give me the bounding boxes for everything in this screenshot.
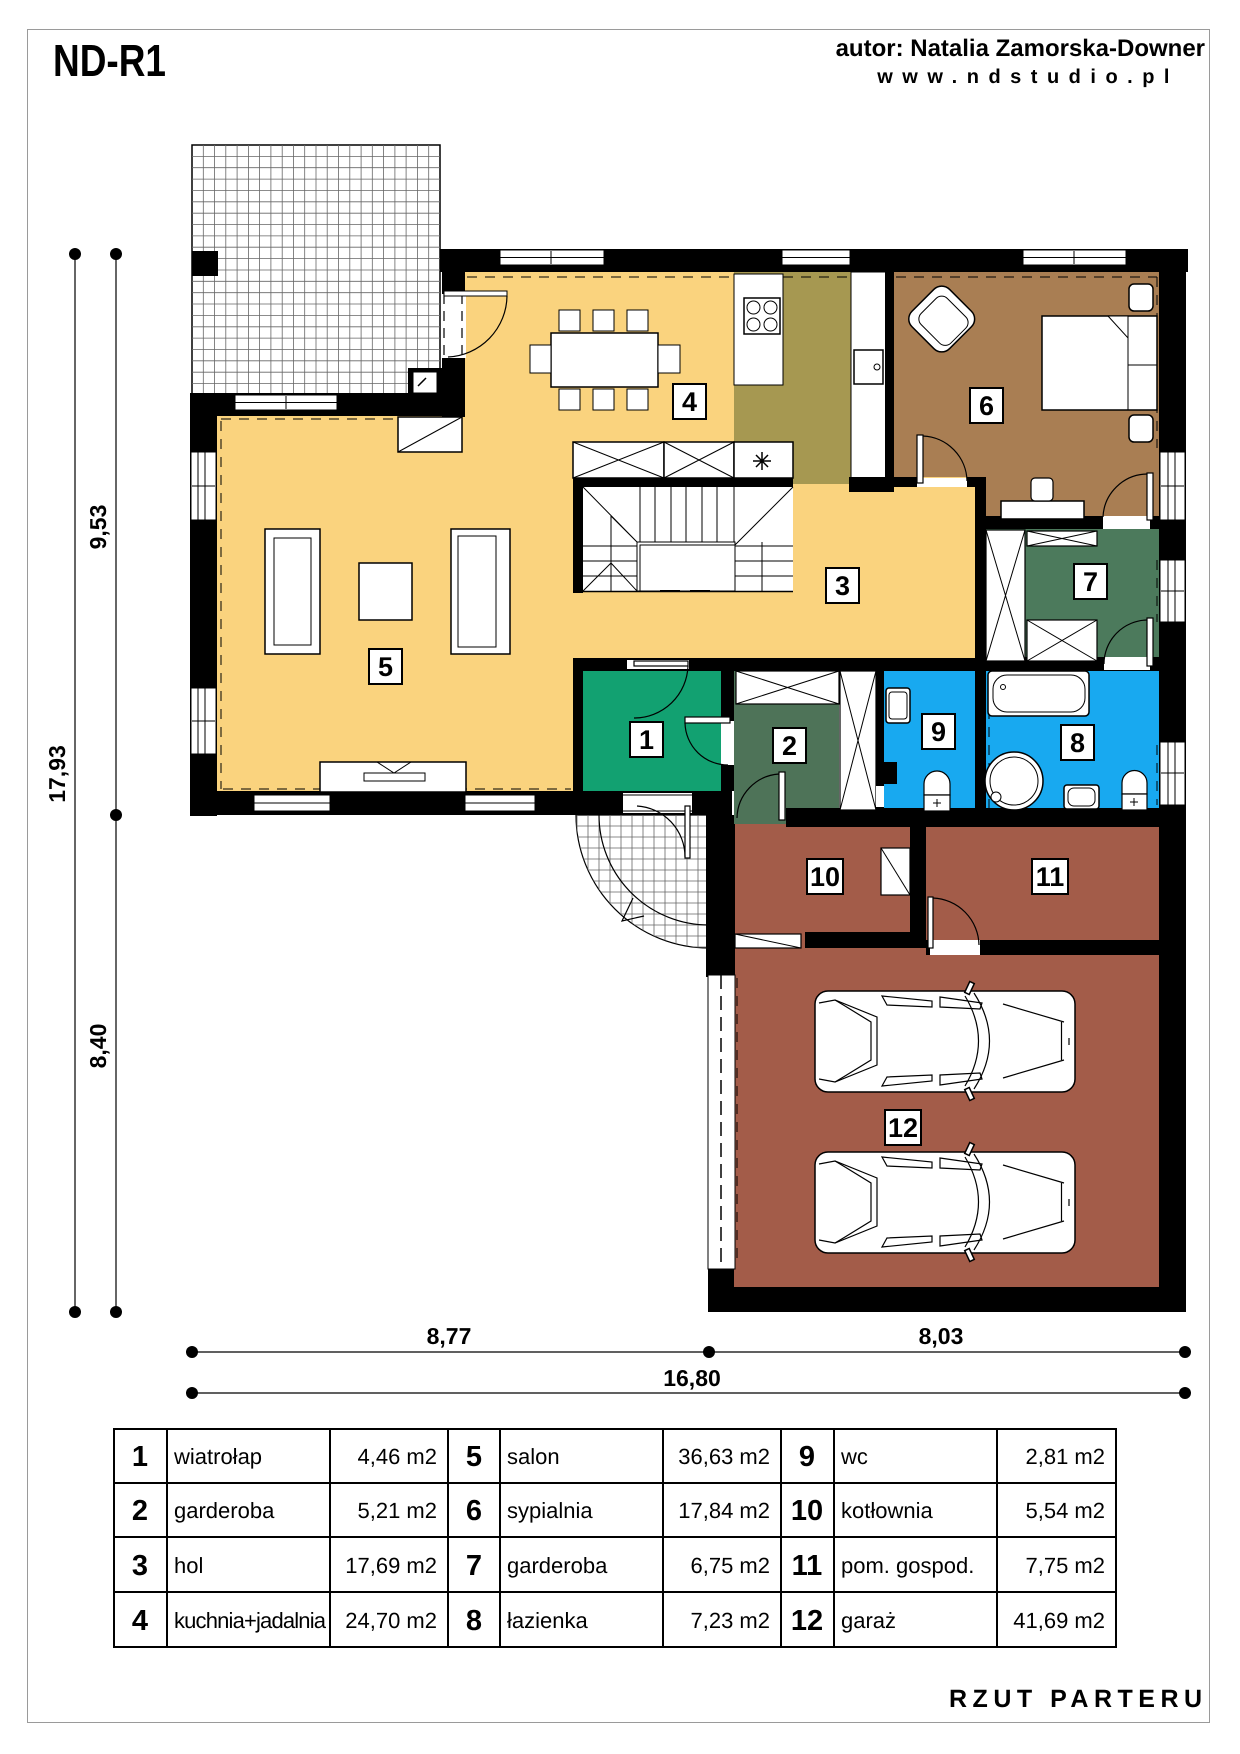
svg-text:5: 5: [466, 1441, 482, 1473]
svg-text:9: 9: [931, 717, 946, 747]
svg-text:hol: hol: [174, 1553, 203, 1578]
svg-text:8,03: 8,03: [919, 1323, 964, 1349]
svg-text:8,40: 8,40: [85, 1024, 111, 1069]
svg-text:2: 2: [132, 1495, 148, 1527]
svg-text:4: 4: [132, 1605, 148, 1637]
svg-text:6: 6: [466, 1495, 482, 1527]
svg-text:garderoba: garderoba: [174, 1498, 275, 1523]
svg-text:10: 10: [791, 1495, 823, 1527]
svg-text:kotłownia: kotłownia: [841, 1498, 933, 1523]
svg-text:7: 7: [466, 1550, 482, 1582]
svg-text:6: 6: [979, 391, 994, 421]
svg-text:6,75 m2: 6,75 m2: [691, 1553, 771, 1578]
svg-text:9: 9: [799, 1441, 815, 1473]
svg-text:5: 5: [378, 652, 393, 682]
svg-text:łazienka: łazienka: [507, 1608, 588, 1633]
svg-text:8,77: 8,77: [427, 1323, 472, 1349]
svg-text:1: 1: [132, 1441, 148, 1473]
svg-text:sypialnia: sypialnia: [507, 1498, 593, 1523]
svg-text:4: 4: [682, 387, 697, 417]
svg-text:16,80: 16,80: [663, 1365, 721, 1391]
svg-text:3: 3: [132, 1550, 148, 1582]
svg-text:www.ndstudio.pl: www.ndstudio.pl: [876, 66, 1179, 88]
svg-text:garaż: garaż: [841, 1608, 896, 1633]
svg-text:17,93: 17,93: [44, 745, 70, 803]
svg-text:RZUT PARTERU: RZUT PARTERU: [949, 1685, 1208, 1713]
svg-text:5,21 m2: 5,21 m2: [358, 1498, 438, 1523]
svg-text:2: 2: [782, 731, 797, 761]
svg-text:9,53: 9,53: [85, 505, 111, 550]
svg-text:8: 8: [1070, 728, 1085, 758]
svg-text:4,46 m2: 4,46 m2: [358, 1444, 438, 1469]
svg-text:7: 7: [1083, 567, 1098, 597]
svg-text:wc: wc: [840, 1444, 868, 1469]
svg-text:wiatrołap: wiatrołap: [173, 1444, 262, 1469]
svg-text:kuchnia+jadalnia: kuchnia+jadalnia: [174, 1608, 327, 1633]
svg-text:24,70 m2: 24,70 m2: [345, 1608, 437, 1633]
svg-text:7,75 m2: 7,75 m2: [1026, 1553, 1106, 1578]
svg-text:2,81 m2: 2,81 m2: [1026, 1444, 1106, 1469]
svg-text:garderoba: garderoba: [507, 1553, 608, 1578]
svg-text:7,23 m2: 7,23 m2: [691, 1608, 771, 1633]
svg-text:11: 11: [1036, 862, 1065, 892]
svg-text:17,69 m2: 17,69 m2: [345, 1553, 437, 1578]
svg-text:ND-R1: ND-R1: [53, 35, 166, 86]
svg-text:36,63 m2: 36,63 m2: [678, 1444, 770, 1469]
svg-text:11: 11: [792, 1550, 823, 1582]
svg-text:12: 12: [791, 1605, 823, 1637]
svg-text:41,69 m2: 41,69 m2: [1013, 1608, 1105, 1633]
svg-text:salon: salon: [507, 1444, 560, 1469]
svg-text:autor: Natalia Zamorska-Downer: autor: Natalia Zamorska-Downer: [836, 35, 1205, 62]
svg-text:5,54 m2: 5,54 m2: [1026, 1498, 1106, 1523]
svg-text:10: 10: [810, 862, 840, 892]
svg-text:pom. gospod.: pom. gospod.: [841, 1553, 974, 1578]
svg-text:17,84 m2: 17,84 m2: [678, 1498, 770, 1523]
svg-text:1: 1: [639, 725, 654, 755]
svg-text:3: 3: [835, 571, 850, 601]
svg-text:12: 12: [888, 1113, 918, 1143]
svg-text:8: 8: [466, 1605, 482, 1637]
